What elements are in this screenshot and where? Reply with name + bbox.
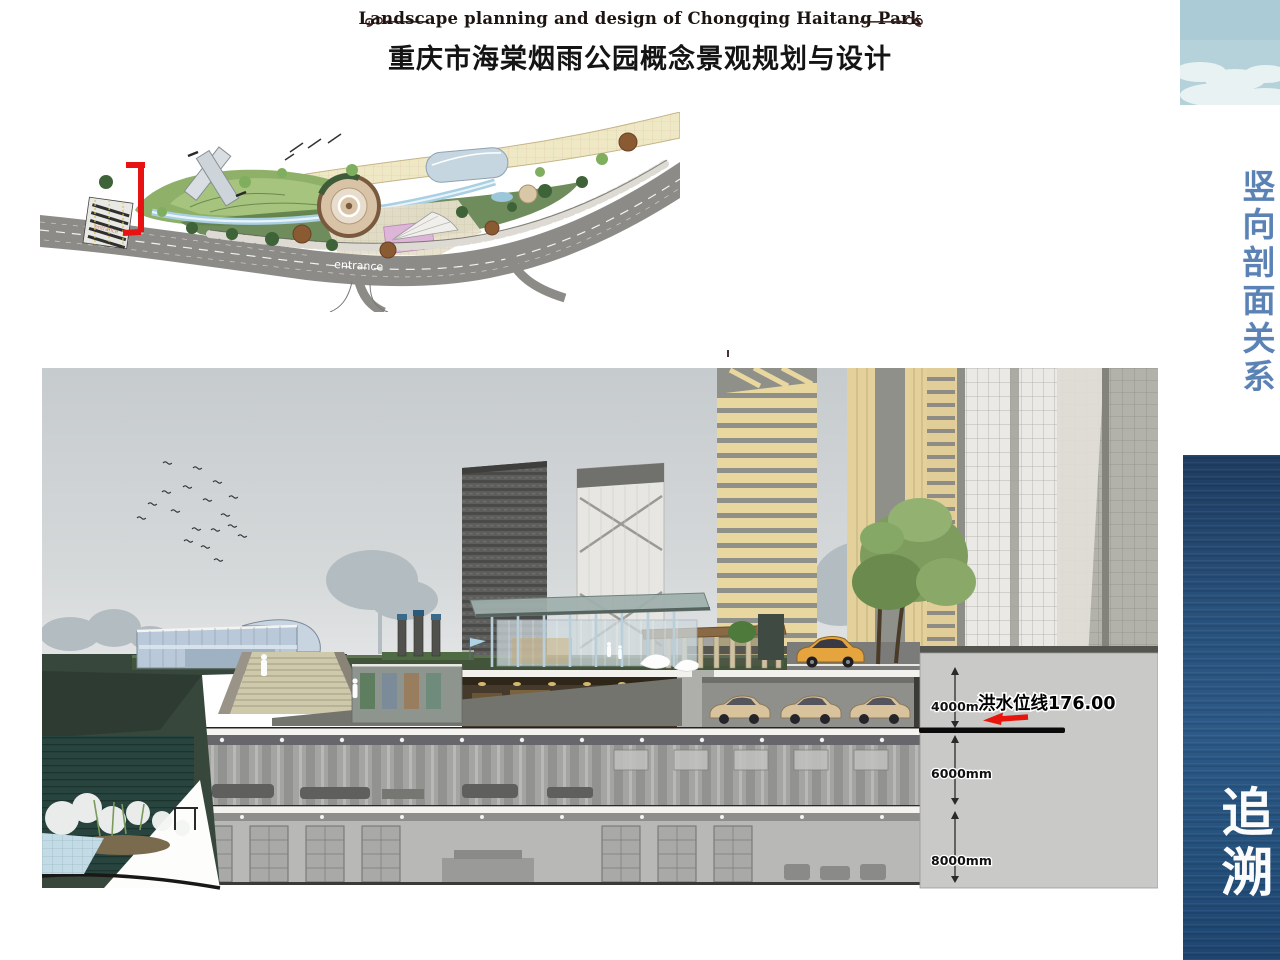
sidebar-sky-image [1180, 0, 1280, 105]
level-1-parking [702, 677, 920, 727]
sidebar-water-image: 追溯 [1183, 455, 1280, 960]
entrance-label: entrance [334, 258, 384, 274]
slab-minus2 [177, 805, 920, 813]
title-chinese: 重庆市海棠烟雨公园概念景观规划与设计 [340, 37, 940, 76]
glass-canopy [470, 593, 710, 667]
plan-entry-structures [83, 175, 133, 249]
plan-circular-plaza [319, 176, 379, 236]
feature-wall [758, 614, 784, 660]
plan-hatch-marks [285, 134, 341, 160]
title-english: Landscape planning and design of Chongqi… [340, 9, 940, 28]
flood-line-label: 洪水位线176.00 [978, 693, 1116, 714]
presentation-board: Landscape planning and design of Chongqi… [0, 0, 1280, 960]
flood-level-line [919, 728, 1065, 734]
section-perspective-render: 4000mm 洪水位线176.00 6000mm 8000mm [42, 368, 1158, 890]
level-2-interior [177, 735, 920, 805]
plan-round-plaza [519, 185, 537, 203]
flourish-right-icon [858, 10, 926, 32]
tower-glass-white [957, 368, 1057, 658]
poster-wall [352, 664, 462, 723]
site-plan: entrance entrance [40, 112, 680, 312]
dim-6000-label: 6000mm [931, 766, 992, 781]
fold-tick [727, 350, 729, 357]
street-tree-trunk [878, 608, 880, 664]
sidebar-theme-title: 追溯 [1183, 750, 1280, 940]
dim-8000-label: 8000mm [931, 853, 992, 868]
slab-minus1 [177, 727, 920, 735]
plan-glass-building [425, 146, 509, 183]
plan-pond [491, 192, 513, 202]
level-3-interior [177, 813, 920, 885]
sidebar-vertical-title: 竖向剖面关系 [1180, 168, 1280, 398]
tower-glass-gray [1057, 368, 1158, 658]
